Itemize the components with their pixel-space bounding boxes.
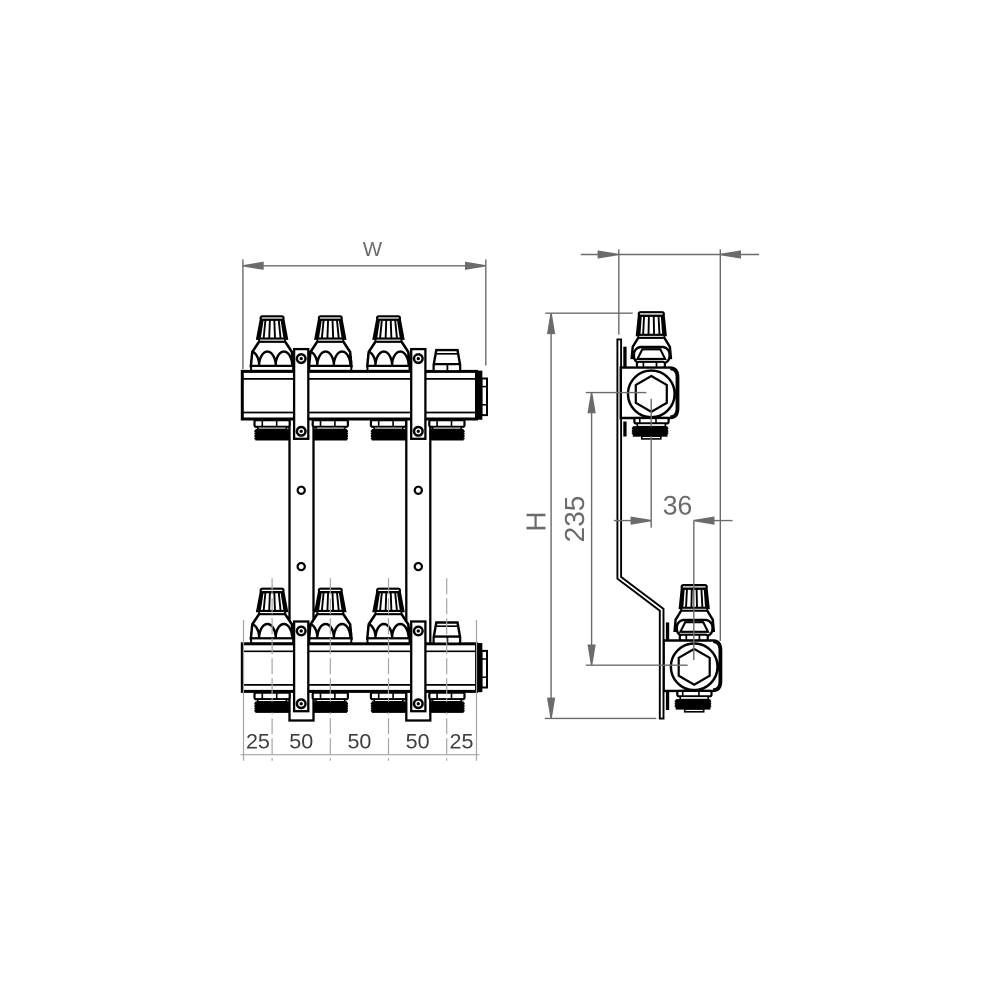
svg-text:235: 235	[559, 496, 590, 543]
svg-text:25: 25	[246, 730, 270, 754]
svg-text:25: 25	[450, 730, 474, 754]
svg-text:50: 50	[406, 730, 430, 754]
svg-text:50: 50	[347, 730, 371, 754]
svg-text:50: 50	[289, 730, 313, 754]
svg-text:H: H	[520, 511, 551, 531]
svg-text:W: W	[363, 238, 383, 261]
svg-text:36: 36	[663, 491, 692, 521]
